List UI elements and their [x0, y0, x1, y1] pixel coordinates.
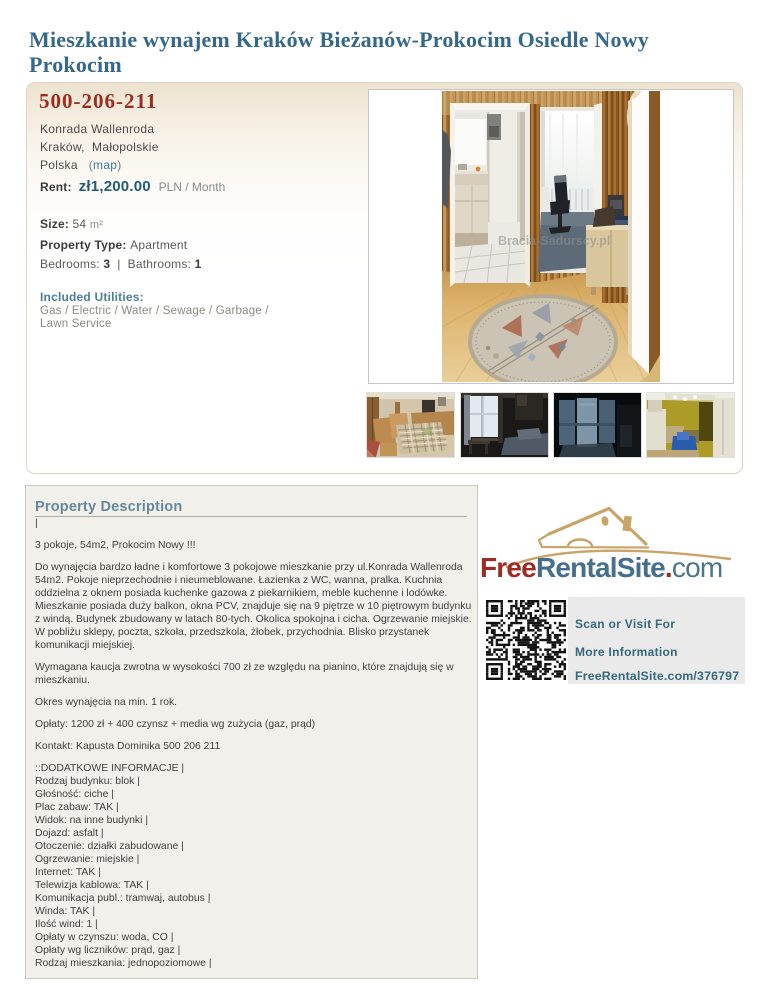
- svg-text:Bracia-Sadurscy.pl: Bracia-Sadurscy.pl: [498, 234, 610, 248]
